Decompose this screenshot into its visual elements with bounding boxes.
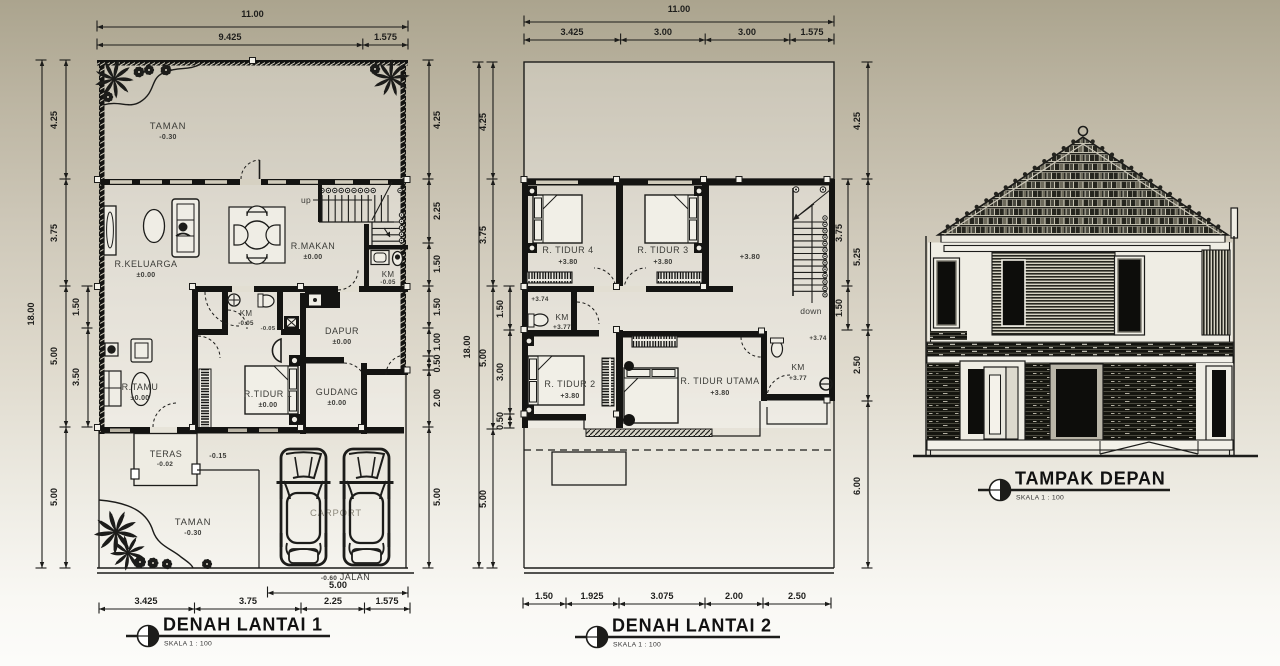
svg-text:1.50: 1.50 — [495, 300, 505, 318]
svg-text:5.00: 5.00 — [478, 349, 488, 367]
svg-text:+3.80: +3.80 — [560, 393, 579, 400]
svg-text:1.575: 1.575 — [801, 27, 824, 37]
svg-text:4.25: 4.25 — [852, 112, 862, 130]
svg-text:-0.15: -0.15 — [209, 453, 226, 460]
svg-text:KM: KM — [555, 312, 568, 322]
svg-text:5.00: 5.00 — [49, 488, 59, 506]
svg-text:JALAN: JALAN — [340, 572, 371, 582]
svg-text:+3.77: +3.77 — [789, 375, 807, 382]
svg-text:-0.30: -0.30 — [184, 530, 201, 537]
svg-text:+3.80: +3.80 — [558, 259, 577, 266]
svg-text:2.25: 2.25 — [432, 202, 442, 220]
svg-text:4.25: 4.25 — [432, 111, 442, 129]
svg-text:±0.00: ±0.00 — [137, 272, 156, 279]
svg-text:R. TIDUR 2: R. TIDUR 2 — [544, 379, 595, 389]
svg-text:KM: KM — [382, 270, 395, 279]
svg-text:SKALA 1 : 100: SKALA 1 : 100 — [613, 642, 661, 649]
svg-text:R.TIDUR 1: R.TIDUR 1 — [244, 389, 293, 399]
svg-text:-0.05: -0.05 — [261, 326, 276, 332]
svg-text:TAMAN: TAMAN — [175, 517, 212, 528]
svg-text:R. TIDUR UTAMA: R. TIDUR UTAMA — [680, 376, 759, 386]
svg-text:-0.30: -0.30 — [159, 134, 176, 141]
svg-text:2.50: 2.50 — [852, 356, 862, 374]
svg-text:3.75: 3.75 — [239, 596, 257, 606]
svg-text:+3.77: +3.77 — [553, 324, 571, 331]
svg-text:3.00: 3.00 — [495, 363, 505, 381]
svg-text:3.75: 3.75 — [834, 224, 844, 242]
svg-text:DENAH LANTAI 2: DENAH LANTAI 2 — [612, 616, 772, 636]
svg-text:±0.00: ±0.00 — [131, 395, 150, 402]
svg-text:DAPUR: DAPUR — [325, 326, 359, 336]
svg-text:18.00: 18.00 — [462, 336, 472, 359]
svg-text:+3.74: +3.74 — [809, 335, 826, 342]
svg-text:11.00: 11.00 — [241, 9, 263, 19]
svg-text:6.00: 6.00 — [852, 477, 862, 495]
svg-text:GUDANG: GUDANG — [316, 387, 359, 397]
svg-text:±0.00: ±0.00 — [328, 400, 347, 407]
svg-text:2.00: 2.00 — [725, 591, 743, 601]
svg-text:±0.00: ±0.00 — [259, 402, 278, 409]
svg-text:18.00: 18.00 — [26, 303, 36, 326]
svg-text:1.50: 1.50 — [834, 299, 844, 317]
svg-text:1.50: 1.50 — [535, 591, 553, 601]
svg-text:5.25: 5.25 — [852, 248, 862, 266]
svg-text:1.575: 1.575 — [376, 596, 399, 606]
svg-text:TAMPAK DEPAN: TAMPAK DEPAN — [1015, 469, 1166, 489]
svg-text:up: up — [301, 195, 311, 205]
svg-text:-0.05: -0.05 — [380, 280, 396, 286]
svg-text:TAMAN: TAMAN — [150, 121, 187, 132]
svg-text:3.075: 3.075 — [651, 591, 674, 601]
svg-text:R. TIDUR 3: R. TIDUR 3 — [637, 245, 688, 255]
svg-text:5.00: 5.00 — [432, 488, 442, 506]
svg-text:3.00: 3.00 — [738, 27, 756, 37]
svg-text:+3.80: +3.80 — [653, 259, 672, 266]
svg-text:R.MAKAN: R.MAKAN — [291, 241, 336, 251]
svg-text:5.00: 5.00 — [478, 490, 488, 508]
svg-text:2.25: 2.25 — [324, 596, 342, 606]
svg-text:R.KELUARGA: R.KELUARGA — [114, 259, 177, 269]
svg-text:3.75: 3.75 — [478, 226, 488, 244]
svg-text:11.00: 11.00 — [668, 4, 690, 14]
svg-text:SKALA 1 : 100: SKALA 1 : 100 — [164, 641, 212, 648]
svg-text:+3.74: +3.74 — [531, 296, 548, 303]
svg-text:9.425: 9.425 — [219, 32, 242, 42]
svg-text:1.00: 1.00 — [432, 333, 442, 351]
svg-text:-0.02: -0.02 — [157, 461, 173, 468]
svg-text:SKALA 1 : 100: SKALA 1 : 100 — [1016, 495, 1064, 502]
svg-text:0.50: 0.50 — [495, 412, 505, 430]
svg-text:3.425: 3.425 — [135, 596, 158, 606]
svg-text:1.50: 1.50 — [432, 298, 442, 316]
svg-text:4.25: 4.25 — [49, 111, 59, 129]
svg-text:2.00: 2.00 — [432, 389, 442, 407]
svg-text:+3.80: +3.80 — [740, 252, 760, 261]
svg-text:3.75: 3.75 — [49, 224, 59, 242]
svg-text:4.25: 4.25 — [478, 113, 488, 131]
svg-text:2.50: 2.50 — [788, 591, 806, 601]
svg-text:1.925: 1.925 — [581, 591, 604, 601]
svg-text:-0.60: -0.60 — [321, 575, 337, 582]
svg-text:1.575: 1.575 — [374, 32, 397, 42]
svg-text:3.425: 3.425 — [561, 27, 584, 37]
svg-text:KM: KM — [240, 309, 253, 318]
svg-text:1.50: 1.50 — [432, 255, 442, 273]
svg-text:0.50: 0.50 — [432, 355, 442, 373]
svg-text:TERAS: TERAS — [150, 449, 183, 459]
svg-text:R. TIDUR 4: R. TIDUR 4 — [542, 245, 593, 255]
svg-text:±0.00: ±0.00 — [333, 339, 352, 346]
svg-text:CARPORT: CARPORT — [310, 508, 362, 519]
svg-text:KM: KM — [791, 362, 804, 372]
svg-text:DENAH LANTAI 1: DENAH LANTAI 1 — [163, 615, 323, 635]
svg-text:3.50: 3.50 — [71, 368, 81, 386]
svg-text:1.50: 1.50 — [71, 298, 81, 316]
svg-text:5.00: 5.00 — [49, 347, 59, 365]
svg-text:±0.00: ±0.00 — [304, 254, 323, 261]
svg-text:R.TAMU: R.TAMU — [122, 382, 159, 392]
svg-text:3.00: 3.00 — [654, 27, 672, 37]
svg-text:+3.80: +3.80 — [710, 390, 729, 397]
svg-text:down: down — [800, 306, 822, 316]
